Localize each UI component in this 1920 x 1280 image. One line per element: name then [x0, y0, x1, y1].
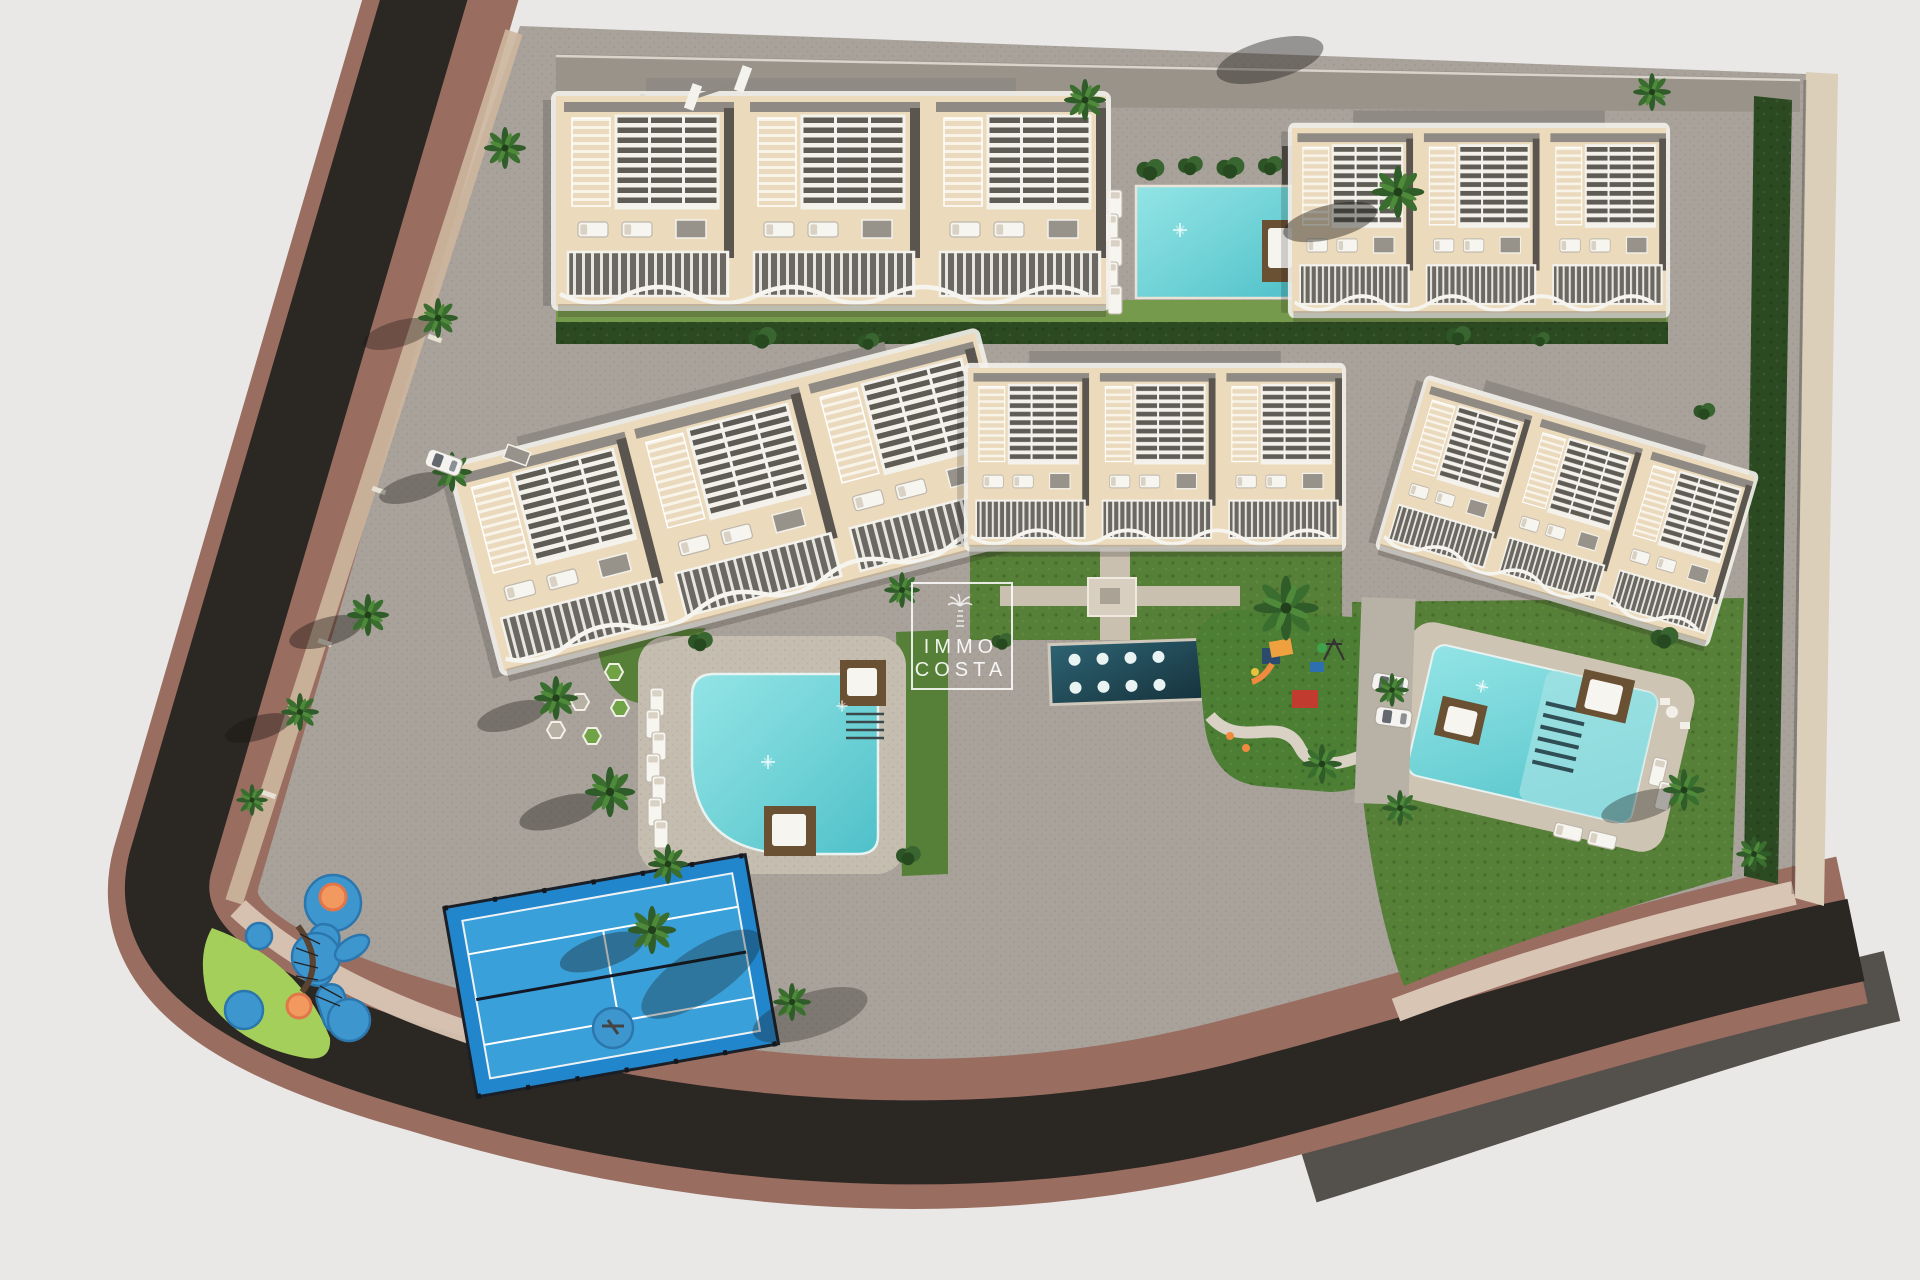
daybed	[772, 814, 806, 846]
chair	[1660, 698, 1670, 705]
driveway	[1354, 597, 1415, 805]
play-box	[1310, 662, 1324, 672]
bench	[1100, 588, 1120, 604]
play-circle	[287, 994, 311, 1018]
building-block-1	[543, 78, 1111, 317]
site-plan-canvas: IMMO COSTA	[0, 0, 1920, 1280]
building-block-4	[957, 351, 1346, 557]
play-circle	[320, 884, 346, 910]
play-box	[1292, 690, 1318, 708]
water-feature	[1049, 639, 1203, 704]
watermark-line2: COSTA	[915, 659, 1007, 681]
pool-west-area	[638, 636, 906, 899]
aerial-site-plan-render: IMMO COSTA	[0, 0, 1920, 1280]
table	[1666, 706, 1678, 718]
daybed	[847, 668, 877, 696]
watermark-line1: IMMO	[924, 636, 998, 658]
chair	[1680, 722, 1690, 729]
